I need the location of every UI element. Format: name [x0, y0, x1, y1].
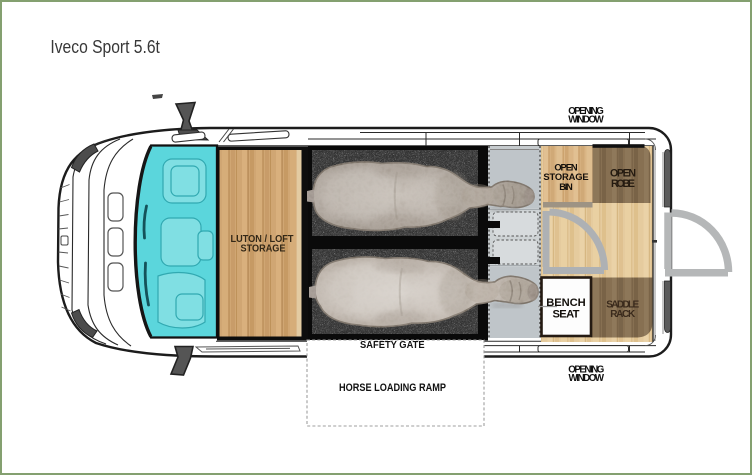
svg-text:ROBE: ROBE [611, 178, 635, 190]
svg-text:STORAGE: STORAGE [241, 244, 286, 255]
svg-text:BENCH: BENCH [546, 297, 586, 309]
svg-text:WINDOW: WINDOW [568, 115, 604, 126]
svg-text:SEAT: SEAT [553, 309, 580, 321]
svg-text:RACK: RACK [610, 309, 636, 320]
svg-text:BIN: BIN [559, 181, 573, 192]
svg-text:SAFETY GATE: SAFETY GATE [360, 340, 425, 351]
svg-text:WINDOW: WINDOW [569, 373, 605, 384]
svg-text:HORSE LOADING RAMP: HORSE LOADING RAMP [339, 382, 446, 394]
svg-text:Iveco Sport 5.6t: Iveco Sport 5.6t [50, 36, 159, 57]
